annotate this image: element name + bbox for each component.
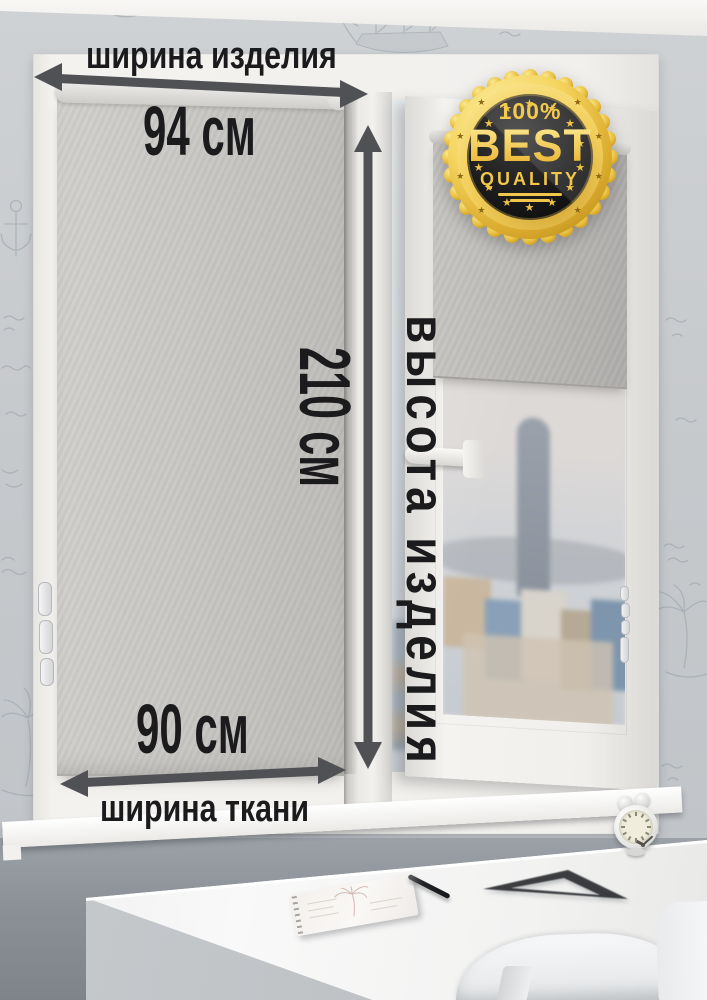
alarm-clock xyxy=(612,792,662,866)
chain-bead xyxy=(621,620,630,635)
product-height-label: высота изделия xyxy=(398,315,452,769)
clock-tick xyxy=(645,832,649,836)
product-photo-roller-blind: ширина изделия 94 см 210 см высота издел… xyxy=(0,0,707,1000)
clock-tick xyxy=(635,838,637,842)
clock-tick xyxy=(645,819,649,823)
clock-tick xyxy=(635,812,637,816)
fabric-width-value: 90 см xyxy=(136,694,249,764)
chair-armrest xyxy=(655,901,707,1000)
quality-badge: ★★★★★★★★ ★★★★★★★★★★★★★★ 100% BEST QUALIT… xyxy=(441,68,619,246)
badge-subtitle-text: QUALITY xyxy=(441,169,619,190)
clock-tick xyxy=(628,836,632,840)
badge-underline xyxy=(498,193,562,196)
clock-tick xyxy=(641,836,645,840)
fabric-width-label: ширина ткани xyxy=(100,790,309,828)
badge-title-text: BEST xyxy=(441,120,619,172)
chain-bead xyxy=(39,620,53,654)
clock-tick xyxy=(623,832,627,836)
clock-face xyxy=(619,810,653,844)
star-icon: ★ xyxy=(525,203,535,214)
wallpaper-palm-sketch-right xyxy=(654,585,707,677)
product-width-value: 94 см xyxy=(143,96,256,166)
clock-tick xyxy=(647,826,651,828)
product-height-value: 210 см xyxy=(288,347,360,487)
product-width-label: ширина изделия xyxy=(86,37,337,75)
chain-bead xyxy=(40,658,54,686)
blind-chain-right xyxy=(617,586,629,681)
window-handle-base xyxy=(463,439,485,478)
blind-chain-left xyxy=(38,582,52,692)
chain-bead xyxy=(38,582,52,616)
clock-tick xyxy=(623,819,627,823)
chain-bead xyxy=(620,586,629,601)
clock-tick xyxy=(641,814,645,818)
badge-underline xyxy=(510,199,550,202)
set-square-ruler xyxy=(478,868,634,908)
clock-tick xyxy=(628,814,632,818)
clock-tick xyxy=(621,826,625,828)
chain-bead xyxy=(620,637,629,663)
windowsill-end-cap xyxy=(3,845,22,861)
clock-center xyxy=(641,843,645,847)
wallpaper-anchor-sketch xyxy=(1,201,31,257)
chain-bead xyxy=(621,603,630,618)
clock-foot xyxy=(627,848,645,856)
